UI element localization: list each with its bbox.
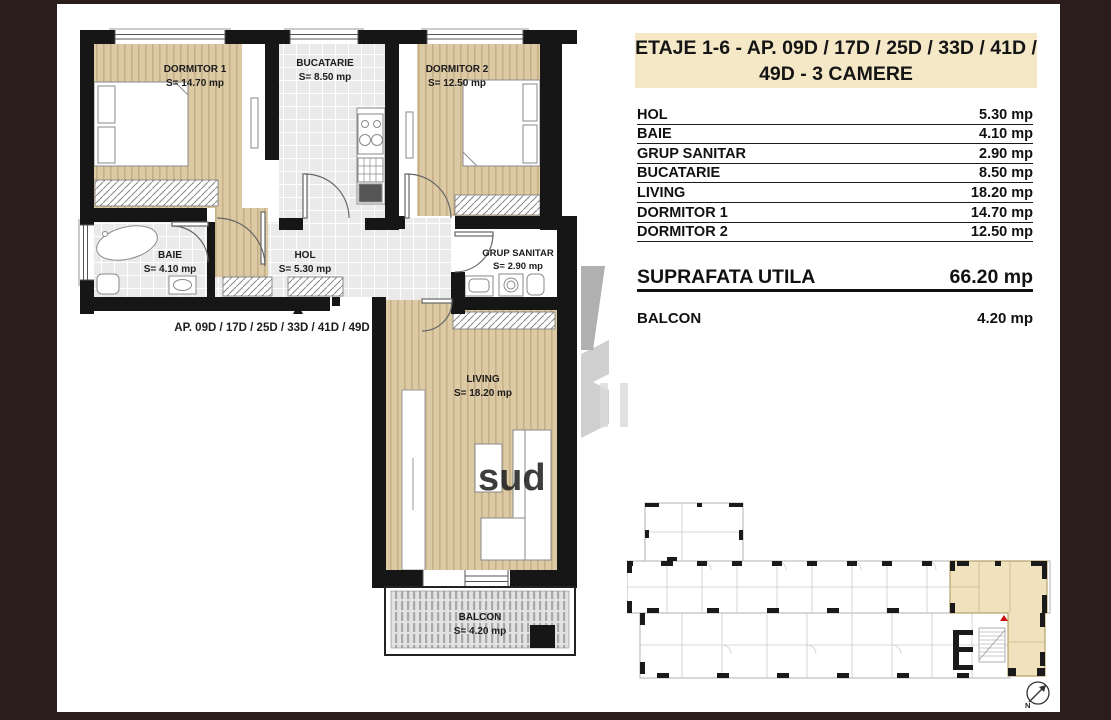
row-label: HOL xyxy=(637,107,668,124)
window-dormitor2 xyxy=(421,29,529,44)
title-box: ETAJE 1-6 - AP. 09D / 17D / 25D / 33D / … xyxy=(635,33,1037,88)
document-page: DORMITOR 1 S= 14.70 mp BUCATARIE S= 8.50… xyxy=(57,4,1060,712)
balcon-label: BALCON xyxy=(637,310,701,327)
table-row: GRUP SANITAR 2.90 mp xyxy=(637,144,1033,164)
apartment-number-label: AP. 09D / 17D / 25D / 33D / 41D / 49D xyxy=(174,322,369,334)
row-value: 5.30 mp xyxy=(979,107,1033,124)
area-dormitor1: S= 14.70 mp xyxy=(166,78,224,89)
label-bucatarie: BUCATARIE xyxy=(296,58,354,69)
table-row: LIVING 18.20 mp xyxy=(637,183,1033,203)
window-bucatarie xyxy=(284,29,364,44)
row-value: 14.70 mp xyxy=(971,205,1033,222)
title-line-1: ETAJE 1-6 - AP. 09D / 17D / 25D / 33D / … xyxy=(635,35,1037,61)
coffee-table xyxy=(475,444,502,492)
table-row: DORMITOR 1 14.70 mp xyxy=(637,203,1033,223)
area-baie: S= 4.10 mp xyxy=(144,264,197,275)
row-value: 12.50 mp xyxy=(971,224,1033,241)
balcon-value: 4.20 mp xyxy=(977,310,1033,327)
window-balcon-door xyxy=(423,570,510,587)
radiator-1 xyxy=(251,98,258,148)
label-balcon: BALCON xyxy=(459,612,502,623)
area-dormitor2: S= 12.50 mp xyxy=(428,78,486,89)
row-label: DORMITOR 1 xyxy=(637,205,728,222)
screenshot-frame: DORMITOR 1 S= 14.70 mp BUCATARIE S= 8.50… xyxy=(0,0,1111,720)
row-label: LIVING xyxy=(637,185,685,202)
area-table: HOL 5.30 mp BAIE 4.10 mp GRUP SANITAR 2.… xyxy=(637,105,1033,242)
total-row: SUPRAFATA UTILA 66.20 mp xyxy=(637,261,1033,292)
total-label: SUPRAFATA UTILA xyxy=(637,266,815,289)
bed-dormitor1 xyxy=(94,82,188,166)
label-dormitor1: DORMITOR 1 xyxy=(164,64,227,75)
area-living: S= 18.20 mp xyxy=(454,388,512,399)
row-label: BUCATARIE xyxy=(637,165,720,182)
row-label: GRUP SANITAR xyxy=(637,146,746,163)
bed-dormitor2 xyxy=(463,80,540,166)
area-grup-sanitar: S= 2.90 mp xyxy=(493,261,543,272)
building-overview: N xyxy=(627,502,1057,712)
toilet-baie xyxy=(97,274,119,294)
label-hol: HOL xyxy=(294,250,315,261)
table-row: BUCATARIE 8.50 mp xyxy=(637,164,1033,184)
total-value: 66.20 mp xyxy=(950,266,1033,289)
label-living: LIVING xyxy=(466,374,500,385)
row-label: BAIE xyxy=(637,126,672,143)
staircase xyxy=(979,628,1005,662)
window-baie xyxy=(79,219,94,286)
row-value: 8.50 mp xyxy=(979,165,1033,182)
row-value: 4.10 mp xyxy=(979,126,1033,143)
table-row: DORMITOR 2 12.50 mp xyxy=(637,223,1033,243)
kitchen-counter xyxy=(357,108,385,204)
floor-plan: DORMITOR 1 S= 14.70 mp BUCATARIE S= 8.50… xyxy=(75,28,595,673)
row-value: 2.90 mp xyxy=(979,146,1033,163)
title-line-2: 49D - 3 CAMERE xyxy=(635,61,1037,87)
compass-label: N xyxy=(1025,701,1030,710)
washing-machine xyxy=(499,274,523,296)
area-hol: S= 5.30 mp xyxy=(279,264,332,275)
sink-baie xyxy=(169,276,196,294)
area-bucatarie: S= 8.50 mp xyxy=(299,72,352,83)
sink-grup-sanitar xyxy=(465,276,493,296)
row-label: DORMITOR 2 xyxy=(637,224,728,241)
area-balcon: S= 4.20 mp xyxy=(454,626,507,637)
compass-icon: N xyxy=(1025,682,1049,710)
balcon-row: BALCON 4.20 mp xyxy=(637,310,1033,327)
label-grup-sanitar: GRUP SANITAR xyxy=(482,248,554,259)
row-value: 18.20 mp xyxy=(971,185,1033,202)
label-baie: BAIE xyxy=(158,250,182,261)
label-dormitor2: DORMITOR 2 xyxy=(426,64,489,75)
table-row: BAIE 4.10 mp xyxy=(637,125,1033,145)
radiator-2 xyxy=(406,112,413,158)
toilet-grup-sanitar xyxy=(527,274,544,295)
window-dormitor1 xyxy=(109,29,231,44)
table-row: HOL 5.30 mp xyxy=(637,105,1033,125)
